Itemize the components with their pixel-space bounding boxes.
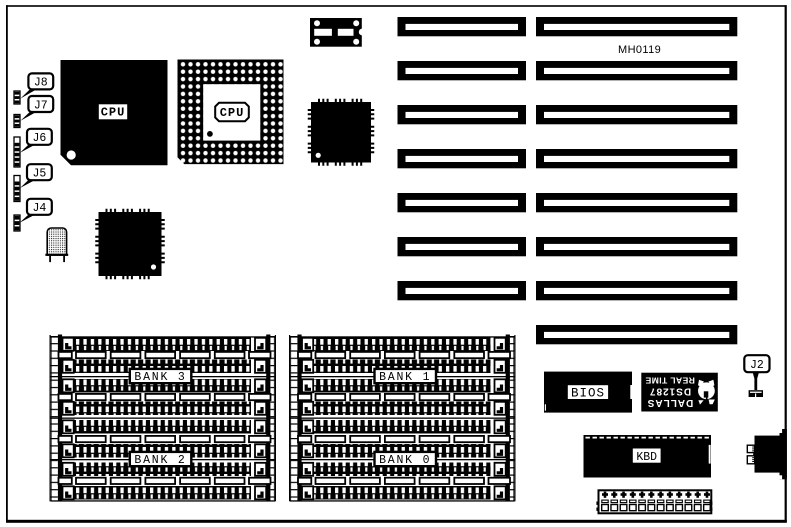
svg-text:REAL TIME: REAL TIME [645, 375, 695, 385]
svg-text:J4: J4 [32, 202, 46, 215]
svg-text:BANK 1: BANK 1 [379, 371, 431, 384]
svg-text:CPU: CPU [101, 106, 126, 120]
svg-text:BANK 0: BANK 0 [379, 454, 431, 467]
svg-text:J2: J2 [750, 359, 764, 372]
svg-text:J7: J7 [34, 99, 48, 112]
svg-text:J5: J5 [32, 168, 46, 181]
svg-text:BANK 2: BANK 2 [134, 454, 186, 467]
svg-text:DALLAS: DALLAS [647, 397, 694, 408]
svg-text:J8: J8 [34, 77, 48, 90]
svg-text:KBD: KBD [636, 451, 657, 464]
svg-text:BIOS: BIOS [571, 387, 605, 401]
svg-text:BANK 3: BANK 3 [134, 371, 186, 384]
svg-text:DS1287: DS1287 [649, 386, 691, 397]
svg-text:MH0119: MH0119 [618, 44, 661, 56]
svg-text:J6: J6 [32, 132, 46, 145]
svg-text:CPU: CPU [220, 106, 245, 120]
